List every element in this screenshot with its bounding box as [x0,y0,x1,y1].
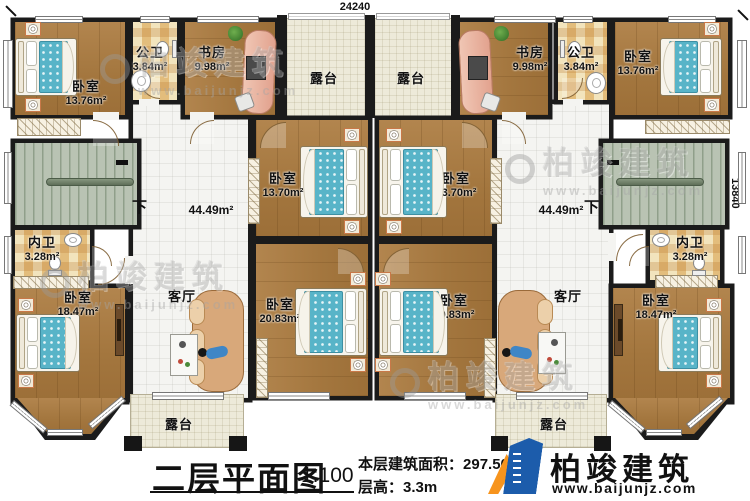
window [197,16,259,23]
stair-direction-tick [116,160,128,165]
nightstand [375,272,391,286]
title-underline [150,491,354,493]
computer-monitor [246,56,266,80]
coffee-table [170,334,198,376]
stair-direction-tick [607,160,619,165]
sink [131,70,151,92]
window [738,152,746,204]
wall [277,15,287,118]
bed [660,38,722,96]
bed [379,288,448,356]
dimension-tick [5,5,16,16]
terrace-post [124,436,142,451]
scale-label: 1:100 [301,464,354,488]
room-label-bedroom-bottom-left: 卧室18.47m² [42,291,114,318]
room-label-terrace-top-left: 露台 [310,68,338,87]
door-opening [190,112,214,120]
window [4,236,12,274]
room-label-bedroom-bottom-right: 卧室18.47m² [620,294,692,321]
closet [655,275,718,288]
terrace-parapet [376,13,450,20]
room-label-bedroom-top-left: 卧室13.76m² [50,80,122,107]
nightstand [18,298,34,312]
wall [365,15,375,118]
room-label-study-left: 书房9.98m² [180,46,244,73]
window [646,429,682,436]
floor-height-line: 层高：3.3m [358,476,437,497]
bed [15,38,77,96]
door-arc [93,120,119,146]
door-opening [93,112,119,120]
floor-plan-page: 24240 13840 [0,0,750,501]
window [35,16,83,23]
sofa [192,290,244,392]
nightstand [344,128,360,142]
nightstand [25,22,41,36]
bed [16,314,80,372]
company-logo-icon [488,438,544,496]
nightstand [344,220,360,234]
coffee-table [538,332,566,374]
room-label-bedroom-bottom-center-right: 卧室20.83m² [418,294,490,321]
hall-area-left: 44.49m² [176,203,246,217]
closet [256,338,268,398]
room-label-bath-public-left: 公卫3.84m² [118,46,182,73]
nightstand [350,358,366,372]
bed [379,146,447,218]
company-logo-url: www.baijunjz.com [552,480,697,496]
hall-area-right: 44.49m² [526,203,596,217]
door-opening [608,233,616,261]
window [738,236,746,274]
closet [484,338,496,398]
bed [295,288,367,356]
closet [17,118,81,136]
window [4,152,12,204]
stair-handrail [616,178,704,186]
plant [494,26,509,41]
dimension-tick [737,9,748,20]
bed [300,146,368,218]
nightstand [706,374,722,388]
room-label-bedroom-mid-right: 卧室13.70m² [420,172,492,199]
door-opening [563,99,583,106]
door-opening [139,99,159,106]
nightstand [386,220,402,234]
computer-monitor [468,56,488,80]
dimension-top: 24240 [320,1,390,13]
bay-window [737,40,747,108]
closet [645,120,730,134]
door-opening [502,112,526,120]
terrace-post [229,436,247,451]
door-opening [125,256,134,284]
terrace-door [516,392,588,400]
stair-handrail [46,178,134,186]
nightstand [18,374,34,388]
terrace-parapet [288,13,365,20]
tv-cabinet [115,304,124,356]
window [494,16,556,23]
nightstand [375,358,391,372]
terrace-door [152,392,224,400]
room-label-hall-right: 客厅 [554,286,582,305]
stairs-down-label: 下 [132,196,147,217]
nightstand [350,272,366,286]
plant [228,26,243,41]
window [404,392,466,400]
nightstand [706,298,722,312]
room-label-terrace-bottom-left: 露台 [165,414,193,433]
bay-window [3,40,13,108]
room-label-terrace-top-right: 露台 [397,68,425,87]
room-label-terrace-bottom-right: 露台 [540,414,568,433]
door-arc [92,246,112,266]
nightstand [704,22,720,36]
window [563,16,593,23]
wall [451,15,460,118]
room-label-bath-inner-right: 内卫3.28m² [660,236,720,263]
nightstand [25,98,41,112]
nightstand [386,128,402,142]
window [47,429,83,436]
window [140,16,170,23]
window [268,392,330,400]
nightstand [704,98,720,112]
room-label-hall-left: 客厅 [168,286,196,305]
room-label-bath-inner-left: 内卫3.28m² [12,236,72,263]
bed [658,314,722,372]
